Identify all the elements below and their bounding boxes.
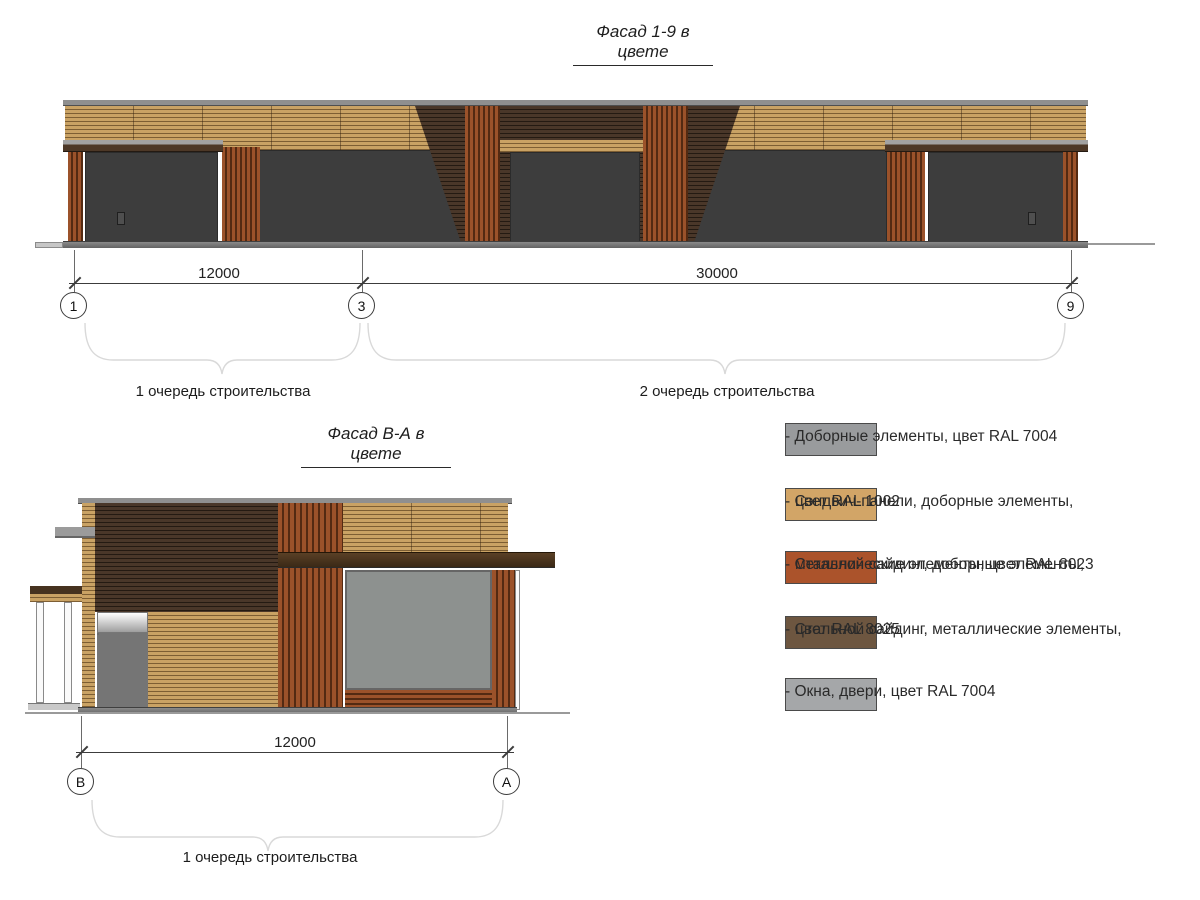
extension-line xyxy=(362,250,363,292)
vertical-slat-column-center-right xyxy=(643,106,688,243)
legend-label: цвет RAL 8025 xyxy=(785,619,900,640)
canopy-fascia-right xyxy=(885,140,1088,152)
ground-step-left xyxy=(35,242,63,248)
phase-bracket-3 xyxy=(92,800,503,851)
drawing-sheet: Фасад 1-9 в цвете 12000 30000 1 3 9 xyxy=(0,0,1200,900)
phase-bracket-1 xyxy=(85,323,360,374)
vertical-slat-column-center-left xyxy=(465,106,500,243)
door-transom xyxy=(97,612,148,633)
canopy-fascia-left xyxy=(63,140,223,152)
facade-1-9-drawing xyxy=(63,100,1088,248)
canopy-beam-tan xyxy=(30,594,82,602)
canopy-post-left xyxy=(36,602,44,703)
extension-line xyxy=(81,716,82,768)
red-slat-sill-band xyxy=(345,690,492,708)
dark-siding-block xyxy=(95,503,278,612)
grid-bubble-b: В xyxy=(67,768,94,795)
legend-label: - Доборные элементы, цвет RAL 7004 xyxy=(785,426,1057,447)
dimension-line xyxy=(69,283,1078,284)
tan-band-center xyxy=(500,140,643,152)
door-leaf xyxy=(97,633,99,635)
grid-bubble-3: 3 xyxy=(348,292,375,319)
vertical-slat-column-left xyxy=(222,147,260,243)
window-section-mid-left xyxy=(258,150,465,242)
vertical-slat-pilaster-right xyxy=(1063,145,1078,243)
canopy-beam-dark xyxy=(30,586,82,594)
legend-label: - Окна, двери, цвет RAL 7004 xyxy=(785,681,996,702)
window-section-right-end xyxy=(928,152,1075,242)
extension-line xyxy=(1071,250,1072,292)
vertical-slat-pilaster-left xyxy=(68,145,83,243)
plinth-band xyxy=(63,241,1088,248)
canopy-base xyxy=(28,703,80,710)
extension-line xyxy=(74,250,75,292)
ground-line-b-a xyxy=(25,712,570,714)
extension-line xyxy=(507,716,508,768)
grid-bubble-9: 9 xyxy=(1057,292,1084,319)
ground-line-right xyxy=(1088,243,1155,245)
dimension-value-12000: 12000 xyxy=(169,265,269,282)
facade-b-a-drawing xyxy=(25,497,570,715)
canopy-post-right xyxy=(64,602,72,703)
roof-beam-overhang xyxy=(278,552,555,568)
phase-1-label-bottom: 1 очередь строительства xyxy=(120,849,420,866)
legend-label: металлические элементы, цвет RAL 8023 xyxy=(785,554,1094,575)
legend-label: цвет RAL 1002 xyxy=(785,491,900,512)
tan-slat-band-top-right xyxy=(343,503,508,552)
dimension-value-12000: 12000 xyxy=(245,734,345,751)
window-section-center xyxy=(510,152,640,242)
entrance-double-door xyxy=(97,633,148,709)
wall-ledge xyxy=(55,527,95,538)
dimension-value-30000: 30000 xyxy=(667,265,767,282)
phase-2-label-top: 2 очередь строительства xyxy=(577,383,877,400)
grid-bubble-a: А xyxy=(493,768,520,795)
phase-1-label-top: 1 очередь строительства xyxy=(93,383,353,400)
window-section-left-end xyxy=(85,152,218,242)
vertical-slat-block-center xyxy=(278,503,343,708)
door-handle-left xyxy=(117,212,125,225)
phase-bracket-2 xyxy=(368,323,1065,374)
overhang-post xyxy=(515,570,520,710)
tan-slat-lower-block xyxy=(148,612,278,709)
door-handle-right xyxy=(1028,212,1036,225)
grid-bubble-1: 1 xyxy=(60,292,87,319)
dimension-line xyxy=(76,752,514,753)
vertical-slat-column-right xyxy=(887,145,925,243)
window-section-b-a xyxy=(345,570,492,690)
